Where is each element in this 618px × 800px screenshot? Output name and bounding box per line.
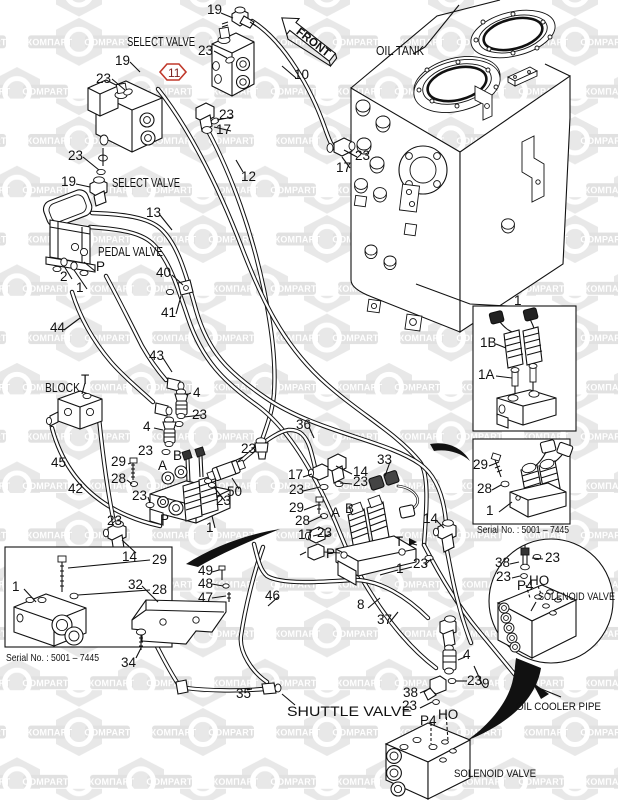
svg-text:29: 29	[111, 454, 126, 469]
svg-text:B: B	[345, 501, 354, 516]
svg-text:23: 23	[68, 148, 83, 163]
svg-text:23: 23	[289, 482, 304, 497]
svg-text:SOLENOID VALVE: SOLENOID VALVE	[454, 768, 536, 780]
svg-text:Serial No. : 5001 – 7445: Serial No. : 5001 – 7445	[6, 652, 99, 664]
svg-text:13: 13	[146, 205, 161, 220]
svg-text:23: 23	[413, 556, 428, 571]
svg-text:17: 17	[298, 527, 313, 542]
svg-text:38: 38	[495, 555, 510, 570]
svg-text:23: 23	[138, 443, 153, 458]
svg-text:4: 4	[463, 647, 471, 662]
svg-text:23: 23	[216, 493, 231, 508]
svg-text:28: 28	[477, 481, 492, 496]
svg-text:48: 48	[198, 576, 213, 591]
svg-text:47: 47	[198, 590, 213, 605]
svg-text:23: 23	[317, 525, 332, 540]
svg-text:23: 23	[107, 513, 122, 528]
svg-text:23: 23	[402, 698, 417, 713]
svg-text:23: 23	[198, 43, 213, 58]
svg-text:SOLENOID VALVE: SOLENOID VALVE	[538, 591, 615, 603]
svg-text:1: 1	[396, 561, 404, 576]
svg-text:P: P	[160, 512, 169, 527]
svg-text:19: 19	[207, 2, 222, 17]
svg-text:23: 23	[192, 407, 207, 422]
svg-text:1: 1	[486, 503, 494, 518]
svg-text:11: 11	[168, 66, 181, 80]
svg-text:43: 43	[149, 348, 164, 363]
svg-text:10: 10	[294, 67, 309, 82]
svg-text:19: 19	[115, 53, 130, 68]
svg-text:17: 17	[336, 160, 351, 175]
svg-text:14: 14	[423, 511, 439, 526]
svg-text:T: T	[81, 372, 89, 387]
svg-text:12: 12	[241, 169, 256, 184]
svg-text:28: 28	[152, 582, 167, 597]
svg-text:HO: HO	[438, 707, 458, 722]
svg-text:1: 1	[12, 579, 20, 594]
svg-text:23: 23	[545, 550, 560, 565]
svg-text:28: 28	[111, 471, 126, 486]
svg-text:42: 42	[68, 481, 83, 496]
svg-text:36: 36	[296, 417, 311, 432]
svg-text:T: T	[395, 534, 403, 549]
svg-text:1: 1	[206, 520, 214, 535]
svg-text:23: 23	[96, 71, 111, 86]
svg-text:46: 46	[265, 588, 280, 603]
svg-text:23: 23	[353, 474, 368, 489]
svg-text:32: 32	[128, 577, 143, 592]
svg-text:P4: P4	[420, 713, 437, 728]
svg-text:17: 17	[216, 122, 231, 137]
svg-text:A: A	[158, 458, 167, 473]
svg-text:28: 28	[295, 513, 310, 528]
svg-text:37: 37	[377, 612, 392, 627]
svg-text:P: P	[96, 259, 105, 274]
svg-text:1B: 1B	[480, 335, 497, 350]
svg-text:2: 2	[60, 269, 68, 284]
svg-text:SHUTTLE VALVE: SHUTTLE VALVE	[287, 703, 412, 719]
svg-text:4: 4	[193, 385, 201, 400]
svg-text:45: 45	[51, 455, 66, 470]
svg-text:B: B	[173, 448, 182, 463]
svg-text:SELECT VALVE: SELECT VALVE	[127, 35, 195, 49]
svg-text:23: 23	[467, 673, 482, 688]
svg-text:19: 19	[61, 174, 76, 189]
svg-text:SELECT VALVE: SELECT VALVE	[112, 176, 180, 190]
svg-text:29: 29	[152, 552, 167, 567]
svg-text:41: 41	[161, 305, 176, 320]
svg-text:1A: 1A	[478, 367, 495, 382]
svg-text:4: 4	[143, 419, 151, 434]
svg-text:44: 44	[50, 320, 66, 335]
svg-text:1: 1	[76, 280, 84, 295]
svg-text:9: 9	[482, 676, 490, 691]
svg-text:34: 34	[121, 655, 137, 670]
svg-text:23: 23	[132, 488, 147, 503]
svg-text:23: 23	[355, 148, 370, 163]
svg-text:17: 17	[288, 467, 303, 482]
svg-text:1: 1	[514, 293, 522, 308]
svg-text:PEDAL VALVE: PEDAL VALVE	[98, 245, 163, 259]
svg-text:23: 23	[219, 107, 234, 122]
svg-text:33: 33	[377, 452, 392, 467]
svg-text:29: 29	[473, 457, 488, 472]
svg-text:23: 23	[496, 569, 511, 584]
svg-text:P4: P4	[517, 578, 534, 593]
svg-text:8: 8	[357, 597, 365, 612]
svg-text:P: P	[326, 546, 335, 561]
svg-text:A: A	[331, 505, 340, 520]
svg-text:14: 14	[122, 549, 138, 564]
svg-text:OIL TANK: OIL TANK	[376, 44, 425, 58]
svg-text:Serial No. : 5001 – 7445: Serial No. : 5001 – 7445	[477, 524, 569, 536]
svg-text:35: 35	[236, 686, 251, 701]
svg-text:BLOCK: BLOCK	[45, 381, 81, 395]
svg-text:OIL COOLER PIPE: OIL COOLER PIPE	[516, 701, 601, 713]
svg-text:23: 23	[241, 441, 256, 456]
svg-text:40: 40	[156, 265, 171, 280]
